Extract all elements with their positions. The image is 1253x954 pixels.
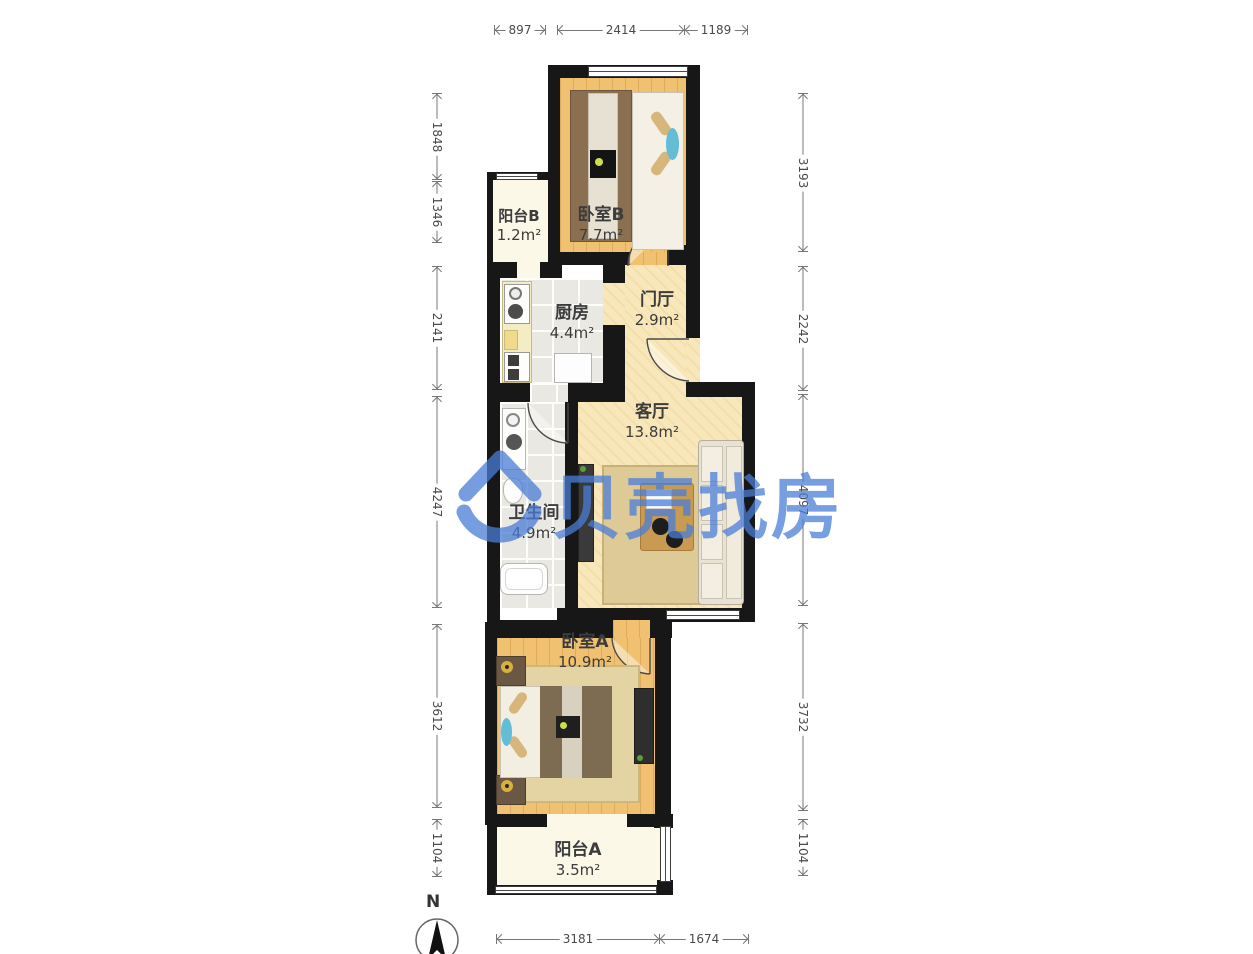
dim-bottom-2: 1674: [659, 934, 749, 944]
dim-top-1: 897: [494, 25, 546, 35]
dim-left-5: 3612: [432, 624, 442, 808]
bathtub-inner: [505, 568, 543, 590]
dim-right-5: 1104: [798, 819, 808, 876]
compass-icon: [413, 914, 461, 954]
dim-top-2: 2414: [557, 25, 685, 35]
doorway-kitchen-hall: [603, 283, 625, 325]
dim-left-3: 2141: [432, 266, 442, 390]
doorway-bathroom: [530, 383, 568, 402]
room-name: 阳台B: [497, 207, 541, 226]
dim-value: 1104: [796, 829, 810, 866]
dim-value: 2242: [796, 310, 810, 347]
dim-value: 1189: [698, 23, 735, 37]
room-area: 1.2m²: [497, 226, 541, 245]
wall-segment: [487, 172, 493, 268]
floorplan-canvas: 阳台B 1.2m² 卧室B 7.7m² 厨房 4.4m² 门厅 2.9m² 客厅…: [0, 0, 1253, 954]
wardrobe-bedroom-a: [634, 688, 654, 764]
room-area: 10.9m²: [558, 653, 612, 672]
burner-icon: [508, 369, 519, 380]
faucet-icon: [509, 287, 522, 300]
room-name: 厨房: [550, 303, 594, 324]
dim-value: 897: [506, 23, 535, 37]
dim-value: 3612: [430, 698, 444, 735]
burner-icon: [508, 355, 519, 366]
lamp-icon: [501, 661, 513, 673]
wall-segment: [487, 822, 497, 888]
sink-bowl-icon: [508, 304, 523, 319]
wall-segment: [568, 383, 603, 402]
dim-left-1: 1848: [432, 93, 442, 180]
dim-right-2: 2242: [798, 266, 808, 391]
tv-led-dot: [595, 158, 603, 166]
dim-bottom-1: 3181: [496, 934, 660, 944]
room-name: 卧室B: [578, 205, 625, 226]
room-label-bedroom-b: 卧室B 7.7m²: [578, 205, 625, 245]
wall-segment: [686, 65, 700, 338]
window-balcony-a-east: [660, 826, 671, 882]
cushion: [501, 718, 512, 746]
wall-segment: [540, 262, 562, 278]
dim-top-3: 1189: [684, 25, 748, 35]
wall-segment: [603, 325, 625, 402]
room-name: 阳台A: [554, 840, 601, 861]
window-balcony-a-south: [495, 886, 657, 894]
window-living: [666, 610, 740, 620]
dim-value: 1346: [430, 194, 444, 231]
wall-segment: [603, 262, 625, 283]
dim-value: 1104: [430, 830, 444, 867]
room-label-kitchen: 厨房 4.4m²: [550, 303, 594, 343]
room-label-balcony-b: 阳台B 1.2m²: [497, 207, 541, 245]
room-label-hall: 门厅 2.9m²: [635, 290, 679, 330]
dim-value: 3193: [796, 154, 810, 191]
wall-segment: [487, 262, 517, 278]
window-bedroom-b: [588, 66, 688, 77]
plant-dot: [637, 755, 643, 761]
dim-value: 1674: [686, 932, 723, 946]
dim-left-4: 4247: [432, 396, 442, 608]
dim-value: 4247: [430, 484, 444, 521]
dim-left-6: 1104: [432, 819, 442, 877]
dim-value: 2414: [603, 23, 640, 37]
room-label-bedroom-a: 卧室A 10.9m²: [558, 632, 612, 672]
tv-bedroom-b: [590, 150, 616, 178]
wall-segment: [548, 65, 560, 278]
lamp-icon: [501, 780, 513, 792]
dim-value: 3181: [560, 932, 597, 946]
dim-value: 3732: [796, 699, 810, 736]
sofa-cushion: [701, 563, 723, 599]
doorway-balconyb-kitchen: [517, 262, 540, 278]
room-area: 4.4m²: [550, 324, 594, 343]
window-balcony-b: [496, 173, 538, 180]
room-label-living: 客厅 13.8m²: [625, 402, 679, 442]
dim-right-4: 3732: [798, 623, 808, 811]
cushion: [666, 128, 679, 160]
room-name: 门厅: [635, 290, 679, 311]
dim-value: 2141: [430, 310, 444, 347]
compass-north-label: N: [426, 892, 440, 912]
door-arc-entrance: [645, 337, 691, 383]
dim-right-1: 3193: [798, 93, 808, 252]
doorway-balcony-a: [547, 814, 627, 827]
room-area: 7.7m²: [578, 226, 625, 245]
room-name: 卧室A: [558, 632, 612, 653]
wall-segment: [655, 622, 671, 814]
room-label-balcony-a: 阳台A 3.5m²: [554, 840, 601, 880]
watermark-text: 贝壳找房: [552, 452, 844, 553]
room-area: 3.5m²: [554, 861, 601, 880]
wall-segment: [487, 383, 530, 402]
dim-value: 1848: [430, 118, 444, 155]
room-area: 2.9m²: [635, 311, 679, 330]
room-name: 客厅: [625, 402, 679, 423]
washer-drum-icon: [506, 413, 520, 427]
dim-left-2: 1346: [432, 181, 442, 243]
wall-segment: [657, 880, 673, 895]
tv-led-dot: [560, 722, 567, 729]
room-area: 13.8m²: [625, 423, 679, 442]
kitchen-tray: [504, 330, 518, 350]
kitchen-appliance: [554, 353, 592, 383]
beike-logo-watermark: [450, 436, 550, 554]
